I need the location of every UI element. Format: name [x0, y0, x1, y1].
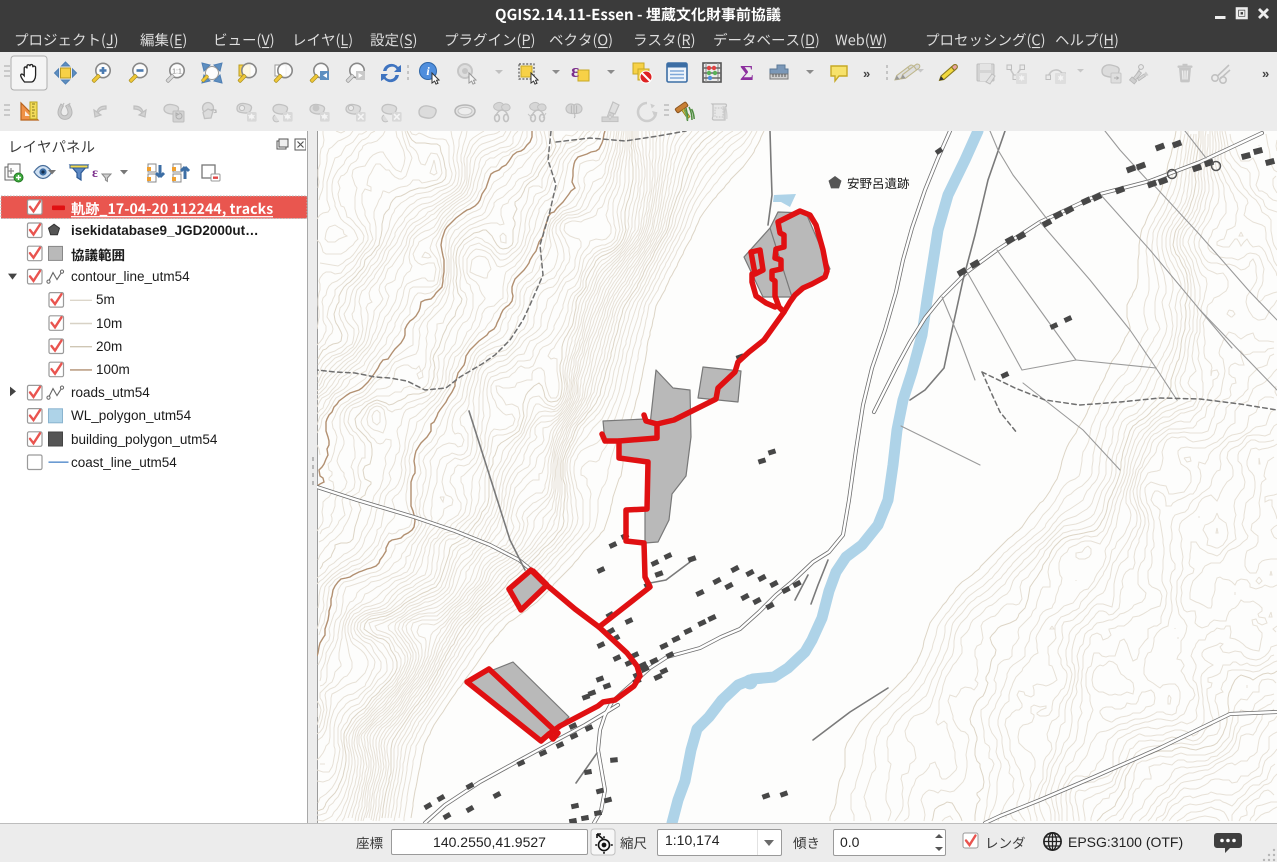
svg-text:Σ: Σ — [740, 61, 754, 85]
svg-text:ε: ε — [571, 61, 579, 82]
